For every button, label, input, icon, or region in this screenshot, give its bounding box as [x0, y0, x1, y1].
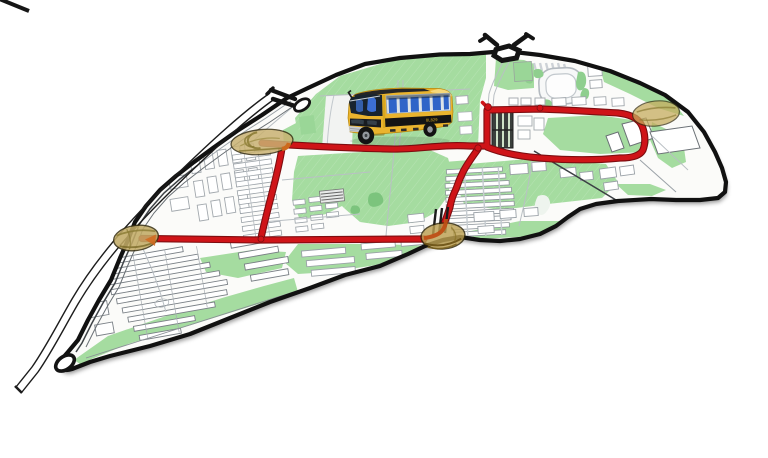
svg-text:8L829: 8L829 [426, 117, 439, 123]
